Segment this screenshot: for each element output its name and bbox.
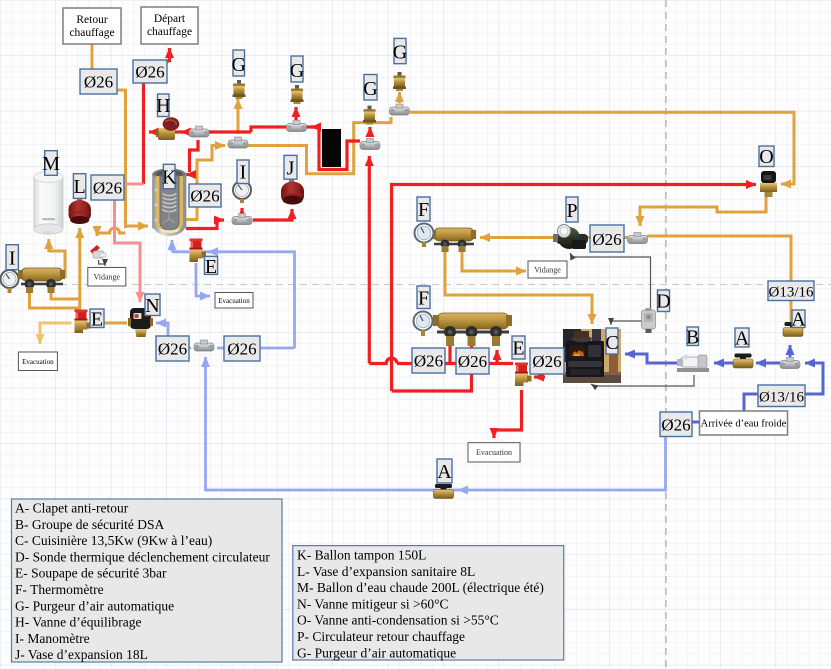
svg-text:H: H [156,95,170,117]
svg-text:Vidange: Vidange [534,266,561,275]
svg-text:Ø26: Ø26 [661,416,690,435]
svg-text:J- Vase d’expansion 18L: J- Vase d’expansion 18L [15,647,148,662]
svg-text:Ø26: Ø26 [458,352,487,371]
svg-text:E: E [91,309,103,331]
svg-text:E- Soupape de sécurité 3bar: E- Soupape de sécurité 3bar [15,566,167,581]
svg-text:Ø26: Ø26 [190,187,219,206]
svg-text:Ø26: Ø26 [592,230,621,249]
svg-text:Ø26: Ø26 [158,340,187,359]
svg-text:Ø26: Ø26 [84,73,113,92]
svg-text:Départ: Départ [154,13,186,25]
svg-text:C: C [605,332,618,354]
svg-text:G- Purgeur d’air automatique: G- Purgeur d’air automatique [15,598,174,613]
svg-text:J: J [287,158,295,180]
svg-text:Ø13/16: Ø13/16 [759,390,805,406]
svg-text:G: G [363,78,377,100]
svg-text:M- Ballon d’eau chaude 200L (é: M- Ballon d’eau chaude 200L (électrique … [297,580,544,595]
svg-text:P: P [566,200,577,222]
svg-text:A: A [437,461,452,483]
svg-text:K: K [162,167,177,189]
svg-text:I: I [9,248,16,270]
svg-text:N- Vanne mitigeur si >60°C: N- Vanne mitigeur si >60°C [297,596,449,611]
svg-text:Ø26: Ø26 [414,352,443,371]
svg-text:Vidange: Vidange [93,273,120,282]
svg-text:C- Cuisinière 13,5Kw (9Kw à l’: C- Cuisinière 13,5Kw (9Kw à l’eau) [15,533,212,548]
svg-text:E: E [512,338,524,360]
svg-text:G: G [290,60,304,82]
svg-text:I- Manomètre: I- Manomètre [15,631,90,646]
svg-text:F: F [418,199,429,221]
svg-text:G: G [393,42,407,64]
svg-text:O: O [759,146,773,168]
svg-text:K- Ballon tampon 150L: K- Ballon tampon 150L [297,548,426,563]
svg-text:Ø26: Ø26 [532,352,561,371]
svg-text:A: A [735,328,750,350]
svg-text:Ø26: Ø26 [227,340,256,359]
svg-text:E: E [205,256,217,278]
svg-text:A: A [791,309,806,331]
svg-text:Arrivée d’eau froide: Arrivée d’eau froide [701,419,787,430]
svg-text:G: G [231,54,245,76]
svg-text:H- Vanne d’équilibrage: H- Vanne d’équilibrage [15,615,141,630]
svg-text:Evacuation: Evacuation [476,448,512,457]
svg-text:B- Groupe de sécurité DSA: B- Groupe de sécurité DSA [15,517,164,532]
svg-text:Retour: Retour [76,14,107,26]
svg-text:I: I [240,162,247,184]
svg-text:Evacuation: Evacuation [218,297,250,305]
svg-text:D- Sonde thermique déclencheme: D- Sonde thermique déclenchement circula… [15,549,270,564]
svg-text:N: N [145,295,159,317]
svg-text:Evacuation: Evacuation [22,358,54,366]
svg-text:B: B [686,327,699,349]
svg-text:L- Vase d’expansion sanitaire: L- Vase d’expansion sanitaire 8L [297,564,475,579]
svg-text:A- Clapet anti-retour: A- Clapet anti-retour [15,501,129,516]
svg-text:M: M [42,153,60,175]
svg-text:F- Thermomètre: F- Thermomètre [15,582,104,597]
svg-text:chauffage: chauffage [69,27,114,39]
svg-text:Ø26: Ø26 [93,179,122,198]
svg-text:Ø13/16: Ø13/16 [769,285,815,301]
svg-text:L: L [73,176,85,198]
svg-text:G- Purgeur d’air automatique: G- Purgeur d’air automatique [297,645,456,660]
svg-text:D: D [656,291,670,313]
svg-text:F: F [418,288,429,310]
svg-text:O- Vanne anti-condensation si: O- Vanne anti-condensation si >55°C [297,613,499,628]
svg-text:P- Circulateur retour chauffag: P- Circulateur retour chauffage [297,629,465,644]
svg-text:Ø26: Ø26 [135,63,164,82]
svg-text:chauffage: chauffage [147,26,192,38]
